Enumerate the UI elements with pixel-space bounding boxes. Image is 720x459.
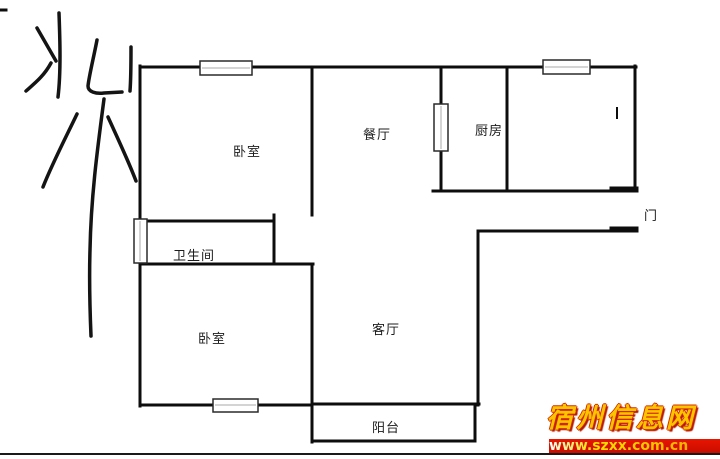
- room-label-living: 客厅: [372, 319, 400, 338]
- watermark-url-bar: www.szxx.com.cn: [549, 439, 720, 453]
- window-kitchen-left: [434, 104, 448, 151]
- north-arrow-icon: [43, 99, 136, 336]
- room-label-balcony: 阳台: [372, 417, 400, 436]
- room-label-bedroom-top: 卧室: [233, 141, 261, 160]
- walls: [0, 10, 637, 442]
- windows: [134, 60, 590, 412]
- window-bathroom-left: [134, 219, 147, 263]
- watermark-site-name: 宿州信息网: [546, 402, 720, 436]
- window-bedroom-bottom: [213, 399, 258, 412]
- floor-plan-page: 北: [0, 0, 720, 459]
- north-indicator: 北: [26, 13, 136, 336]
- door-label: 门: [644, 205, 658, 224]
- floor-plan-drawing: 北: [0, 0, 720, 459]
- room-label-dining: 餐厅: [363, 124, 391, 143]
- window-bedroom-top: [200, 61, 252, 75]
- watermark: 宿州信息网 www.szxx.com.cn: [546, 402, 720, 436]
- window-rightroom-top: [543, 60, 590, 74]
- room-label-bedroom-bottom: 卧室: [198, 328, 226, 347]
- watermark-url: www.szxx.com.cn: [549, 439, 720, 453]
- bottom-divider-line: [0, 453, 720, 455]
- room-label-bathroom: 卫生间: [173, 245, 215, 264]
- north-character: [26, 13, 131, 97]
- room-label-kitchen: 厨房: [475, 120, 503, 139]
